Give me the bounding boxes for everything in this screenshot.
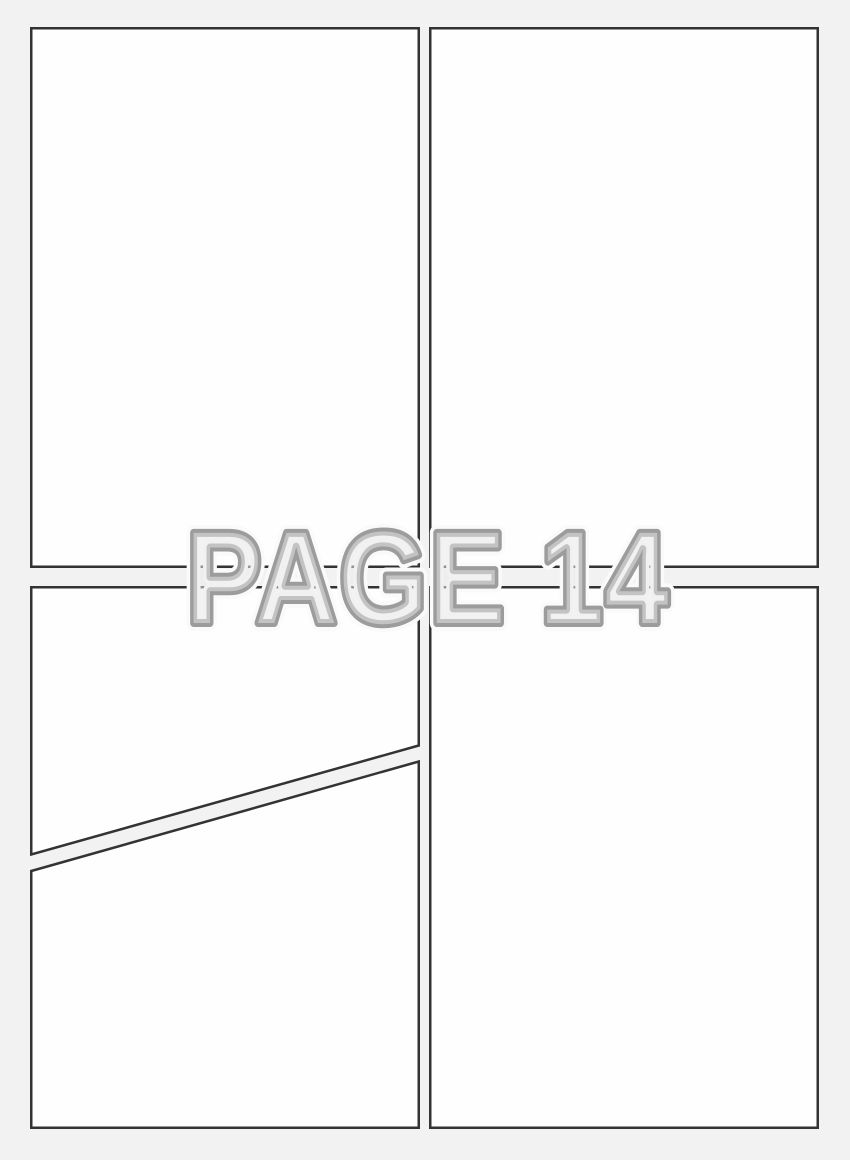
comic-page-template: PAGE 14 PAGE 14 [0, 0, 850, 1160]
page-number-watermark: PAGE 14 PAGE 14 [186, 504, 670, 651]
page-number-watermark-text: PAGE 14 [186, 504, 670, 651]
panel-bottom-right [430, 587, 818, 1128]
panel-grid: PAGE 14 PAGE 14 [0, 0, 850, 1160]
panel-top-right [430, 28, 818, 567]
panel-top-left [31, 28, 419, 567]
